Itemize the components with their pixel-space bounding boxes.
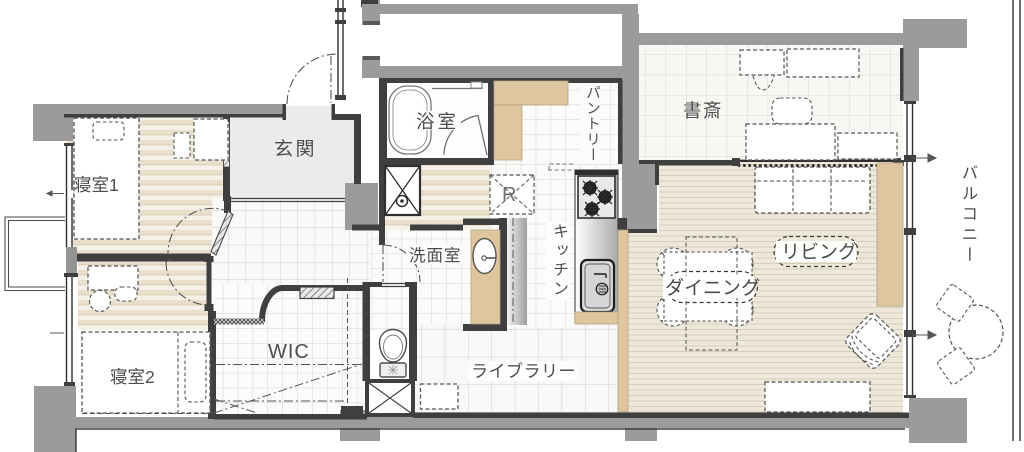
svg-text:R: R [502, 184, 516, 206]
svg-text:書斎: 書斎 [683, 100, 723, 121]
svg-text:ライブラリー: ライブラリー [471, 361, 576, 381]
svg-text:寝室1: 寝室1 [74, 175, 119, 195]
svg-text:ダイニング: ダイニング [665, 277, 760, 299]
svg-text:玄関: 玄関 [274, 138, 317, 160]
svg-text:浴室: 浴室 [416, 111, 459, 132]
svg-text:WIC: WIC [268, 341, 310, 363]
svg-text:リビング: リビング [781, 241, 857, 263]
svg-text:洗面室: 洗面室 [409, 246, 462, 265]
svg-text:寝室2: 寝室2 [110, 367, 155, 387]
